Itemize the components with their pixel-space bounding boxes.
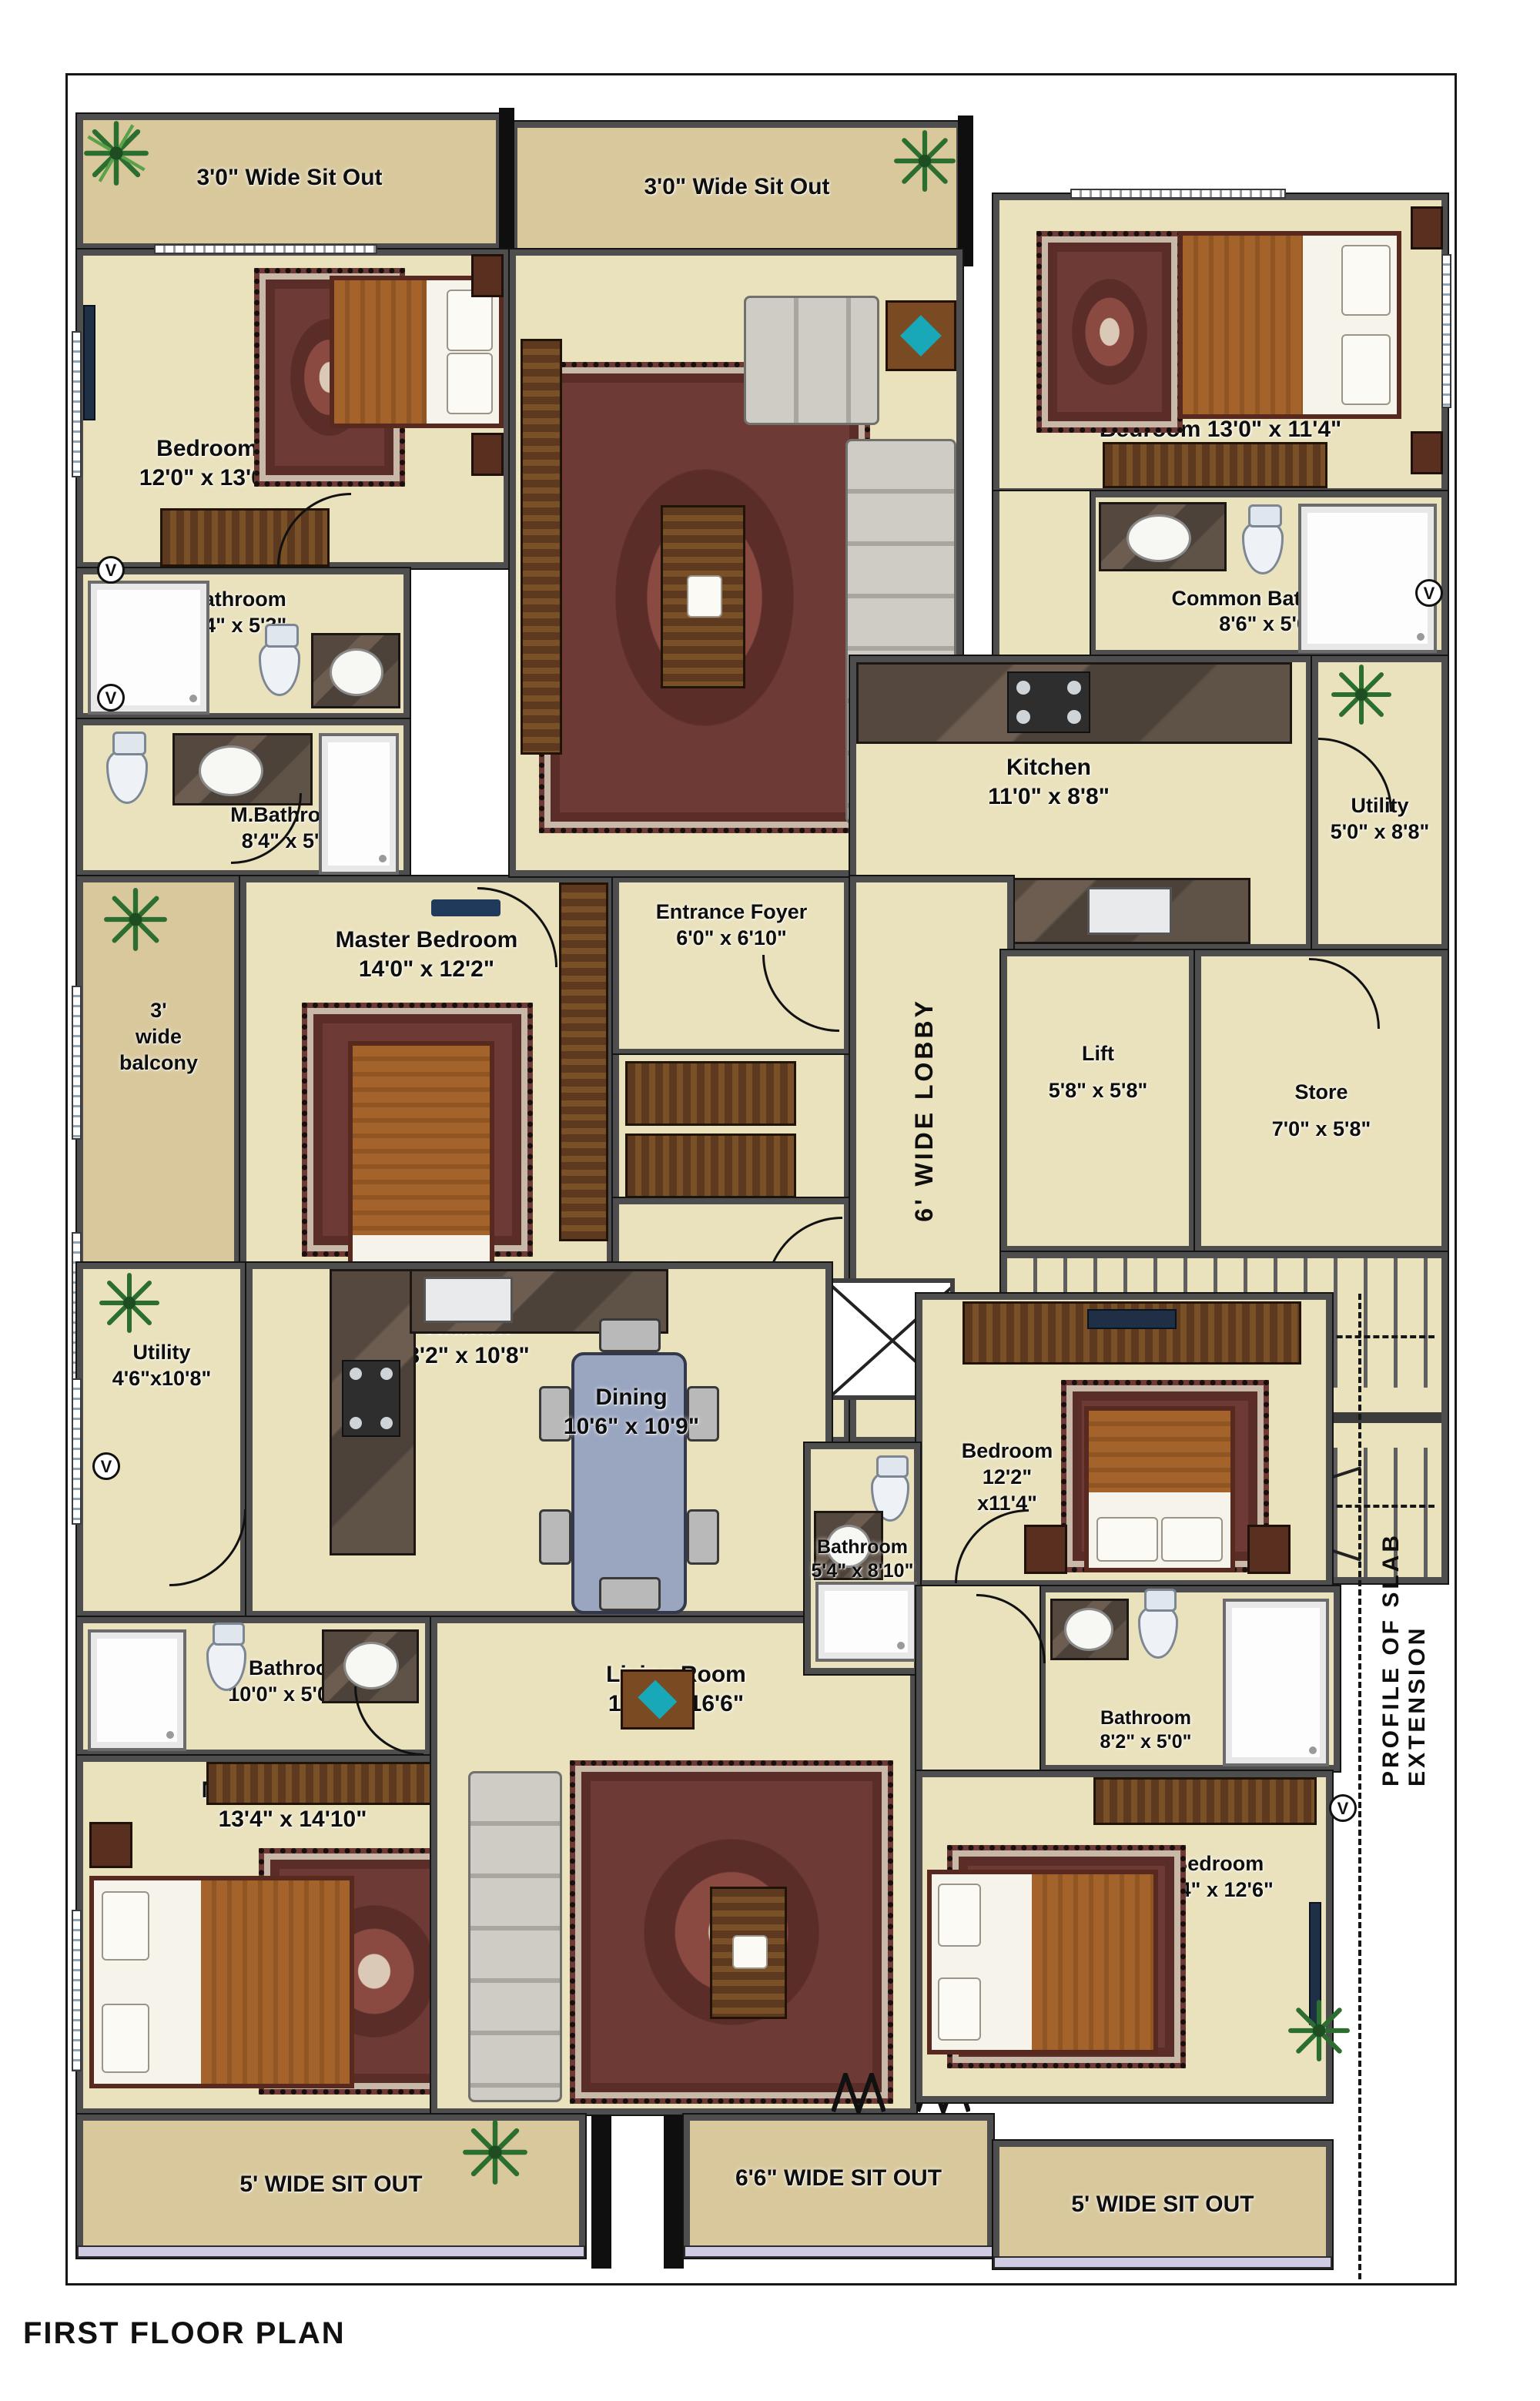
ventilator-symbol: V [97,684,125,712]
window [72,1378,82,1525]
sitout-sill [684,2245,993,2258]
plant-icon [1287,1999,1351,2062]
room-lift: Lift5'8" x 5'8" [1001,950,1195,1252]
bed [330,276,504,428]
bathroom-d-label: Bathroom5'4" x 8'10" [793,1535,932,1584]
wardrobe [559,882,608,1241]
chair [539,1509,571,1565]
sitout-top-mid-label: 3'0" Wide Sit Out [517,172,956,202]
sitout-bottom-right-label: 5' WIDE SIT OUT [999,2190,1326,2219]
room-bathroom-a: Bathroom8'4" x 5'3" [77,568,410,719]
nightstand [1247,1525,1291,1574]
window [1070,189,1286,199]
nightstand [1024,1525,1067,1574]
chair [687,1509,719,1565]
plant-icon [1331,664,1392,725]
side-table [621,1669,695,1730]
side-table [885,300,956,371]
wall-post [591,2115,611,2269]
nightstand [1411,206,1443,249]
chair [599,1577,661,1611]
sofa [468,1771,562,2102]
bed [1084,1406,1235,1572]
window [72,986,82,1140]
plant-icon [462,2119,528,2185]
room-bathroom-d2: Bathroom8'2" x 5'0" [1039,1586,1340,1771]
wall-post [499,108,514,256]
lobby-label: 6' WIDE LOBBY [910,998,939,1222]
sitout-bottom-mid-label: 6'6" WIDE SIT OUT [690,2164,987,2193]
sitout-sill [993,2256,1332,2269]
lift-label: Lift5'8" x 5'8" [1007,1041,1189,1104]
window [72,331,82,477]
bedroom-d-label: Bedroom12'2"x11'4" [946,1438,1069,1516]
utility-c-label: Utility4'6"x10'8" [83,1340,240,1392]
room-common-bathroom: Common Bathroom8'6" x 5'0" [1090,491,1448,656]
bathroom-d2-label: Bathroom8'2" x 5'0" [1061,1706,1230,1755]
entrance-foyer-a-label: Entrance Foyer6'0" x 6'10" [619,899,844,952]
plant-icon [83,120,149,186]
sitout-sill [77,2245,585,2258]
wall-post [664,2115,684,2269]
bed [89,1876,354,2088]
kitchen-b-label: Kitchen11'0" x 8'8" [933,753,1164,811]
nightstand [1411,431,1443,474]
nightstand [89,1822,132,1868]
cabinet [625,1061,796,1126]
wardrobe [1103,442,1327,488]
ventilator-symbol: V [92,1452,120,1480]
room-kitchen-dining-c: Kitchen8'2" x 10'8" [246,1263,832,1617]
plant-icon [99,1272,160,1334]
cabinet [625,1134,796,1198]
plant-icon [103,887,168,952]
wall-post [958,116,973,266]
page-title: FIRST FLOOR PLAN [23,2316,346,2351]
bed [927,1870,1158,2054]
bed [1178,231,1401,419]
balcony-a-label: 3'widebalcony [83,998,234,1076]
ventilator-symbol: V [1329,1794,1357,1822]
coffee-table [661,505,745,688]
window-zigzag-icon [832,2073,885,2113]
sofa [744,296,879,425]
slab-extension-line [1358,1294,1361,2279]
tv-unit [521,339,562,755]
window [72,1910,82,2071]
coffee-table [710,1887,787,2019]
window [1441,254,1451,408]
sitout-bottom-right: 5' WIDE SIT OUT [993,2141,1332,2269]
tv-icon [1087,1309,1177,1329]
plant-icon [893,129,956,193]
tv-icon [83,305,95,420]
wardrobe [1093,1777,1317,1825]
passage [993,491,1090,656]
nightstand [471,433,504,476]
sitout-bottom-mid: 6'6" WIDE SIT OUT [684,2115,993,2258]
nightstand [471,254,504,297]
profile-slab-label: PROFILE OF SLAB EXTENSION [1378,1386,1431,1787]
dining-c-label: Dining10'6" x 10'9" [554,1383,708,1441]
window [154,244,377,254]
ventilator-symbol: V [97,556,125,584]
ventilator-symbol: V [1415,579,1443,607]
rug [1036,231,1183,433]
chair [599,1318,661,1352]
store-label: Store7'0" x 5'8" [1201,1080,1441,1143]
